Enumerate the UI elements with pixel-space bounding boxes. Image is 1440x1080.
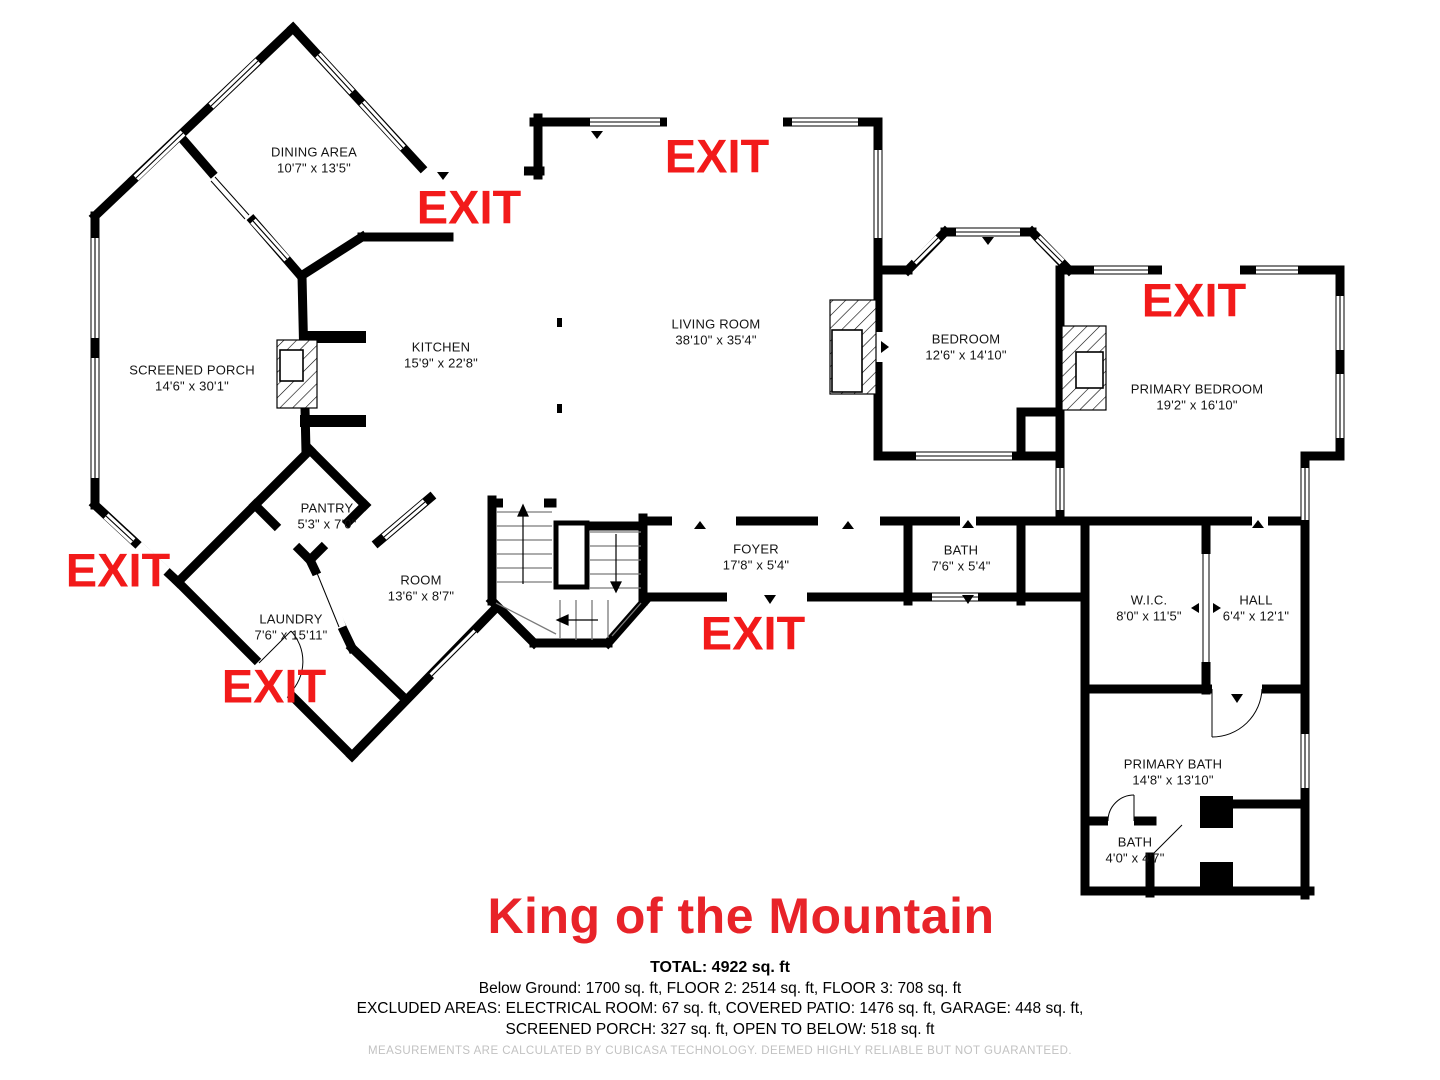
room-label-kitchen: KITCHEN15'9" x 22'8": [404, 340, 478, 371]
room-label-primary-bath: PRIMARY BATH14'8" x 13'10": [1124, 757, 1222, 788]
area-summary: TOTAL: 4922 sq. ft Below Ground: 1700 sq…: [0, 958, 1440, 1040]
room-label-pantry: PANTRY5'3" x 7'0": [297, 501, 356, 532]
excluded-areas-1: EXCLUDED AREAS: ELECTRICAL ROOM: 67 sq. …: [0, 999, 1440, 1020]
room-label-bath: BATH7'6" x 5'4": [931, 543, 990, 574]
room-label-hall: HALL6'4" x 12'1": [1223, 593, 1289, 624]
exit-label: EXIT: [701, 610, 805, 657]
room-label-foyer: FOYER17'8" x 5'4": [723, 542, 789, 573]
exit-label: EXIT: [222, 663, 326, 710]
room-label-laundry: LAUNDRY7'6" x 15'11": [255, 612, 328, 643]
room-label-dining-area: DINING AREA10'7" x 13'5": [271, 145, 357, 176]
room-label-bath-small: BATH4'0" x 4'7": [1105, 835, 1164, 866]
floor-areas: Below Ground: 1700 sq. ft, FLOOR 2: 2514…: [0, 979, 1440, 1000]
exit-label: EXIT: [66, 547, 170, 594]
exit-label: EXIT: [665, 133, 769, 180]
floorplan-canvas: DINING AREA10'7" x 13'5" SCREENED PORCH1…: [0, 0, 1440, 1080]
room-label-wic: W.I.C.8'0" x 11'5": [1116, 593, 1182, 624]
room-label-room: ROOM13'6" x 8'7": [388, 573, 454, 604]
exit-label: EXIT: [1142, 277, 1246, 324]
room-label-primary-bedroom: PRIMARY BEDROOM19'2" x 16'10": [1131, 382, 1264, 413]
plan-title: King of the Mountain: [487, 887, 994, 945]
disclaimer-text: MEASUREMENTS ARE CALCULATED BY CUBICASA …: [0, 1045, 1440, 1057]
exit-label: EXIT: [417, 184, 521, 231]
room-label-living-room: LIVING ROOM38'10" x 35'4": [672, 317, 761, 348]
room-label-bedroom: BEDROOM12'6" x 14'10": [925, 332, 1006, 363]
total-area: TOTAL: 4922 sq. ft: [0, 958, 1440, 979]
room-label-screened-porch: SCREENED PORCH14'6" x 30'1": [129, 363, 255, 394]
excluded-areas-2: SCREENED PORCH: 327 sq. ft, OPEN TO BELO…: [0, 1020, 1440, 1041]
